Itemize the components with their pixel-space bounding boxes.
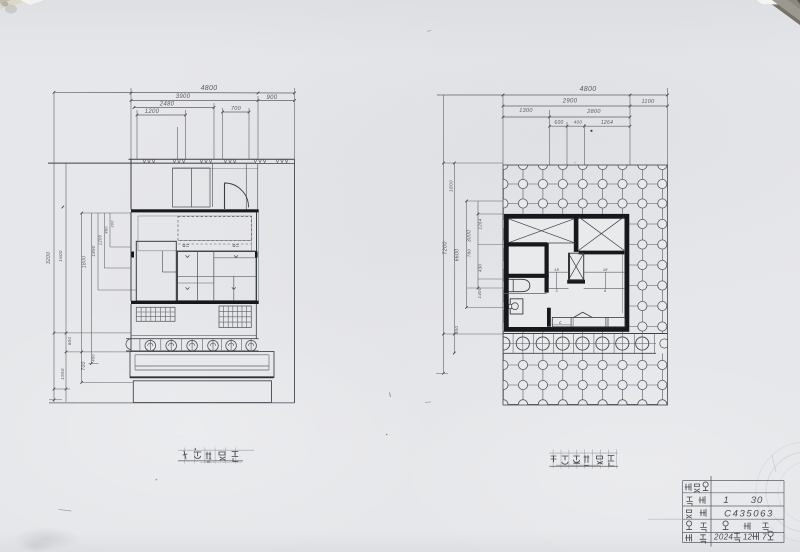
svg-text:3: 3 (555, 289, 557, 293)
svg-text:4800: 4800 (201, 85, 218, 92)
svg-text:1200: 1200 (145, 109, 160, 115)
svg-text:600: 600 (554, 120, 563, 126)
svg-text:400: 400 (91, 354, 96, 362)
svg-text:1: 1 (723, 495, 728, 506)
svg-text:1200: 1200 (98, 234, 103, 245)
svg-text:2900: 2900 (562, 99, 578, 105)
svg-text:6600: 6600 (454, 249, 460, 262)
svg-text:7200: 7200 (443, 241, 449, 255)
svg-text:2480: 2480 (159, 102, 175, 108)
svg-text:700: 700 (81, 361, 87, 370)
svg-text:4800: 4800 (580, 86, 597, 93)
svg-text:3200: 3200 (46, 252, 52, 264)
svg-text:12: 12 (743, 532, 752, 541)
svg-text:30: 30 (751, 495, 764, 506)
svg-text:1100: 1100 (641, 99, 655, 105)
svg-text:7: 7 (762, 532, 767, 541)
svg-text:900: 900 (267, 95, 278, 101)
svg-text:2800: 2800 (586, 109, 601, 115)
svg-text:600: 600 (67, 337, 72, 346)
svg-text:1890: 1890 (91, 245, 96, 256)
svg-text:800: 800 (454, 326, 459, 335)
svg-text:1800: 1800 (81, 256, 87, 268)
svg-text:2024: 2024 (713, 532, 734, 541)
svg-text:3900: 3900 (176, 94, 191, 100)
svg-text:1800: 1800 (449, 180, 455, 192)
svg-text:300: 300 (110, 220, 114, 228)
svg-text:1550: 1550 (60, 368, 65, 380)
svg-text:18: 18 (603, 268, 608, 272)
svg-text:1600: 1600 (58, 250, 63, 262)
svg-text:c: c (559, 320, 562, 325)
svg-text:6: 6 (604, 289, 606, 293)
svg-text:1264: 1264 (478, 218, 483, 229)
svg-text:18: 18 (554, 268, 559, 272)
svg-text:700: 700 (231, 106, 242, 112)
svg-text:480: 480 (104, 226, 109, 234)
svg-text:1264: 1264 (601, 120, 613, 126)
svg-text:1400: 1400 (477, 287, 482, 298)
svg-text:400: 400 (574, 119, 583, 124)
svg-text:780: 780 (466, 249, 471, 257)
svg-text:430: 430 (478, 264, 483, 272)
svg-text:C435063: C435063 (724, 509, 774, 520)
svg-text:1300: 1300 (519, 108, 533, 114)
svg-text:3000: 3000 (466, 230, 472, 242)
